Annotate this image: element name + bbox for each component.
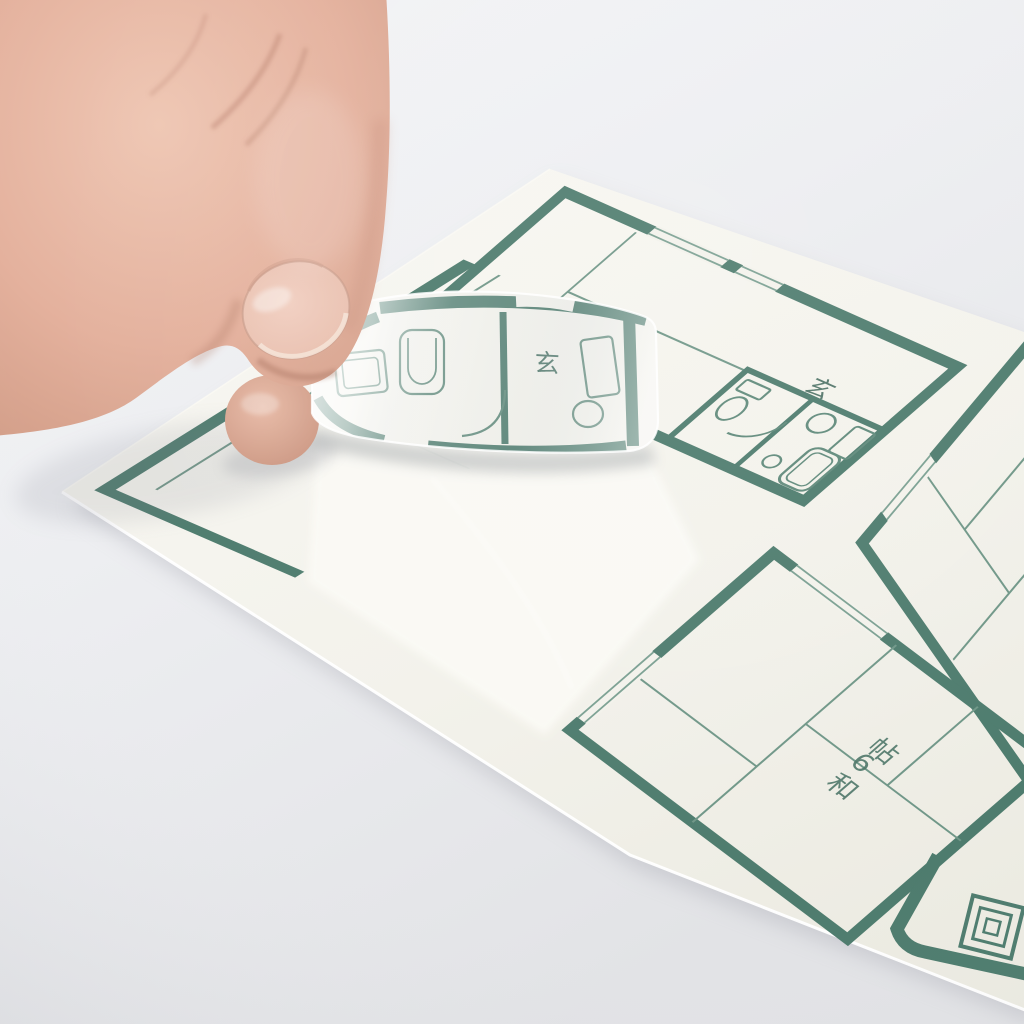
- index-fingertip: [225, 375, 319, 465]
- knuckle-highlight: [255, 90, 365, 270]
- photo: 玄 和6帖: [0, 0, 1024, 1024]
